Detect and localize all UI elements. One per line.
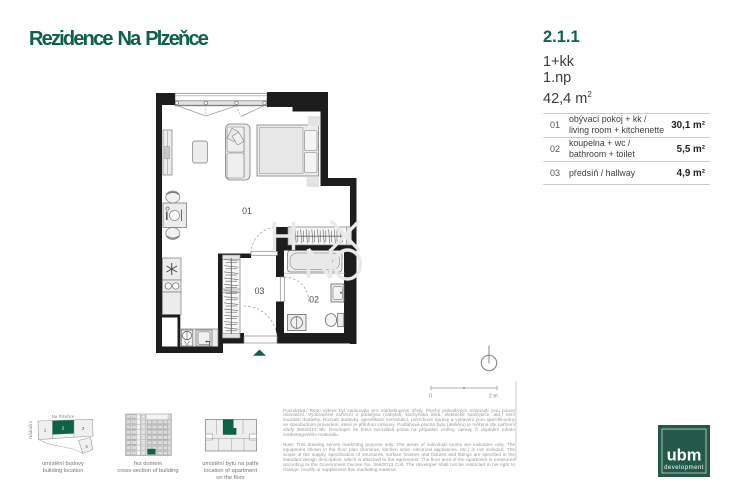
svg-text:02: 02 xyxy=(309,295,319,305)
svg-text:3: 3 xyxy=(82,426,85,431)
svg-text:1: 1 xyxy=(44,428,47,433)
svg-text:development: development xyxy=(664,465,704,471)
svg-text:Na Plzeňce: Na Plzeňce xyxy=(52,414,75,419)
svg-text:0: 0 xyxy=(429,394,432,400)
svg-text:2 m: 2 m xyxy=(489,394,498,400)
svg-text:2: 2 xyxy=(62,426,65,431)
svg-text:01: 01 xyxy=(242,206,252,216)
svg-text:ubm: ubm xyxy=(667,447,702,465)
svg-text:03: 03 xyxy=(255,286,265,296)
svg-text:Nádražní: Nádražní xyxy=(28,420,33,439)
svg-text:4: 4 xyxy=(85,444,88,449)
